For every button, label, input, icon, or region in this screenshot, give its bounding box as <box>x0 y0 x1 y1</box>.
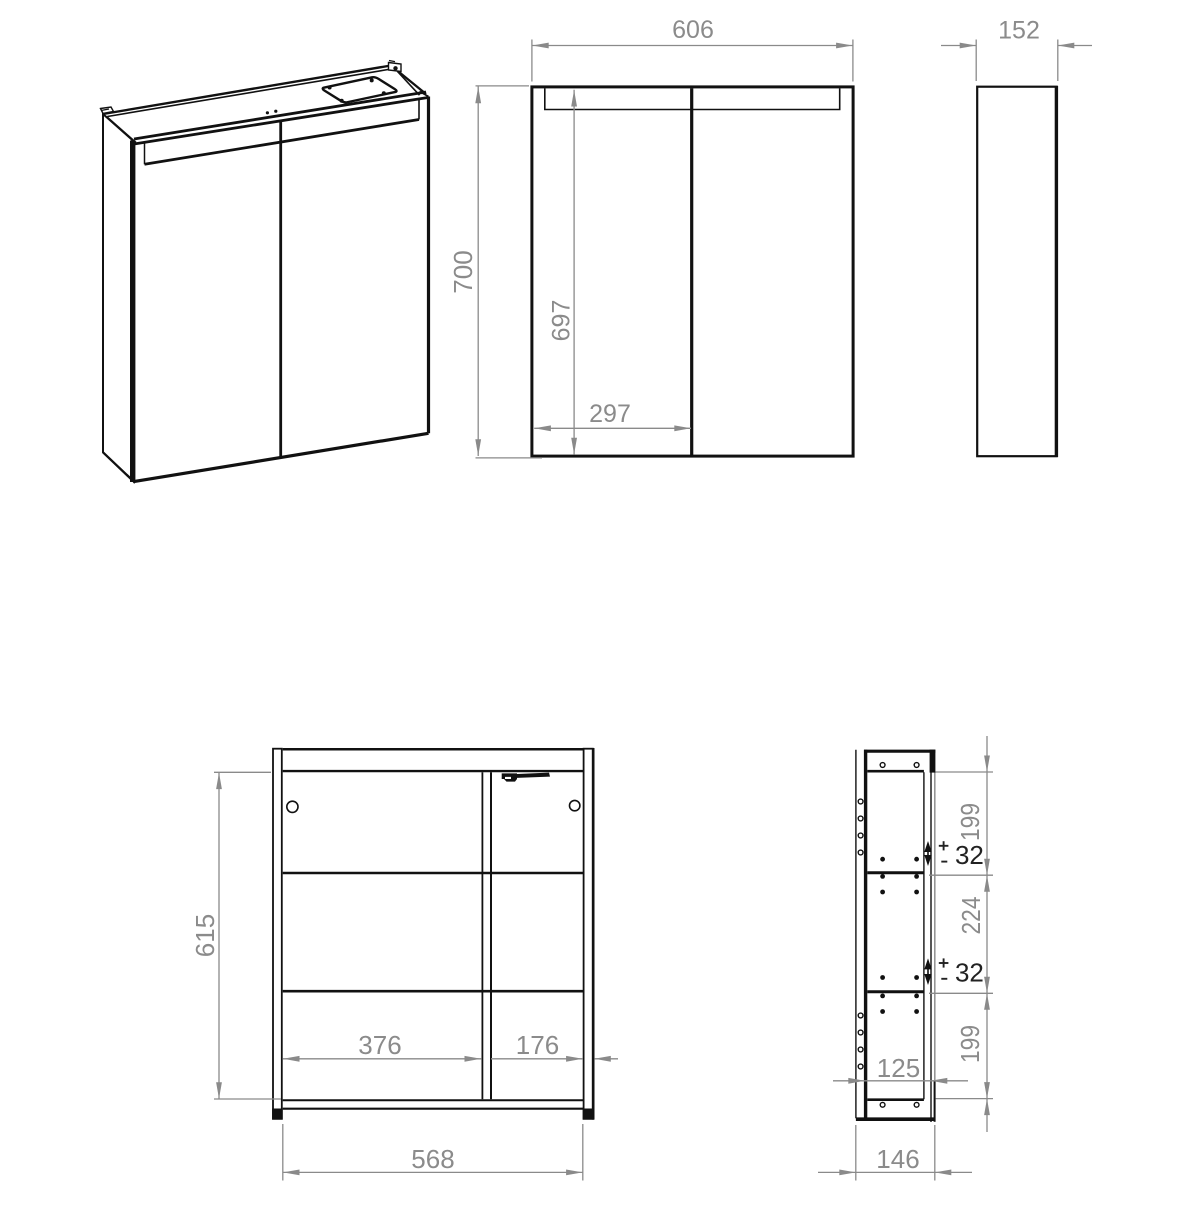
svg-text:199: 199 <box>955 1025 985 1063</box>
svg-text:700: 700 <box>448 250 478 293</box>
svg-text:146: 146 <box>876 1144 919 1174</box>
svg-text:152: 152 <box>998 17 1040 45</box>
svg-text:615: 615 <box>190 914 220 957</box>
svg-text:606: 606 <box>672 16 714 44</box>
svg-text:32: 32 <box>955 957 984 987</box>
svg-text:568: 568 <box>411 1144 454 1174</box>
svg-text:176: 176 <box>516 1030 559 1060</box>
svg-text:125: 125 <box>877 1053 920 1083</box>
svg-text:32: 32 <box>955 840 984 870</box>
svg-text:697: 697 <box>548 300 576 342</box>
svg-text:297: 297 <box>589 400 631 428</box>
svg-text:199: 199 <box>955 803 985 841</box>
svg-text:376: 376 <box>358 1030 401 1060</box>
svg-text:224: 224 <box>956 897 986 935</box>
